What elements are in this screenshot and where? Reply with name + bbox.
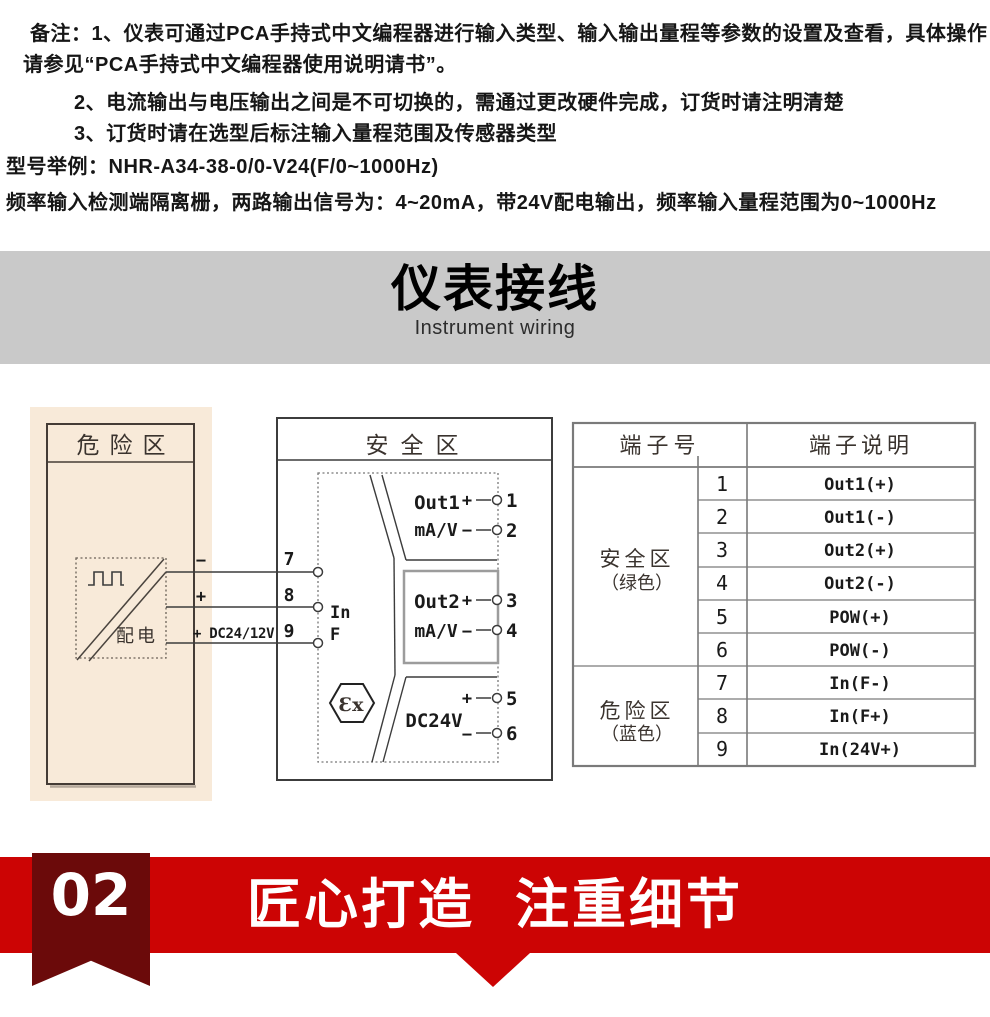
- table-row-desc: POW(-): [829, 641, 890, 661]
- dc24v-label: DC24V: [405, 710, 462, 732]
- out2-unit-label: mA/V: [414, 621, 458, 642]
- table-row-number: 8: [716, 704, 728, 728]
- note-line-4: 3、订货时请在选型后标注输入量程范围及传感器类型: [74, 117, 557, 146]
- table-row-number: 7: [716, 671, 728, 695]
- table-row-number: 4: [716, 571, 728, 595]
- note-line-1: 备注：1、仪表可通过PCA手持式中文编程器进行输入类型、输入输出量程等参数的设置…: [30, 17, 987, 46]
- table-row-desc: POW(+): [829, 608, 890, 628]
- section-title: 仪表接线: [0, 251, 990, 314]
- out1-unit-label: mA/V: [414, 520, 458, 541]
- out1-label: Out1: [414, 492, 460, 514]
- terminal-4-circle: [493, 626, 502, 635]
- out1-minus-sign: −: [462, 521, 472, 541]
- terminal-5-number: 5: [506, 688, 517, 710]
- terminal-6-circle: [493, 729, 502, 738]
- input-terminal-7-circle: [314, 568, 323, 577]
- terminal-3-number: 3: [506, 590, 517, 612]
- wire-plus-label: +: [196, 587, 206, 607]
- input-label-f: F: [330, 625, 340, 645]
- table-group-safe-color: （绿色）: [601, 573, 673, 594]
- table-row-number: 9: [716, 737, 728, 761]
- hazard-zone-panel: [30, 407, 212, 801]
- table-group-safe-name: 安全区: [600, 547, 675, 571]
- footer-ribbon: 02: [32, 853, 150, 986]
- wiring-diagram: 危险区 配电 − + + DC24/12V 7 8 9 安全区: [0, 395, 990, 840]
- table-header-terminal-desc: 端子说明: [809, 434, 913, 459]
- table-row-desc: In(F+): [829, 707, 890, 727]
- wire-minus-label: −: [196, 551, 206, 571]
- terminal-2-number: 2: [506, 520, 517, 542]
- dc24v-plus-sign: +: [462, 689, 472, 709]
- table-row-desc: In(F-): [829, 674, 890, 694]
- footer-index: 02: [32, 853, 150, 924]
- out2-box: [404, 571, 498, 663]
- table-group-hazard-color: （蓝色）: [601, 724, 673, 745]
- terminal-5-circle: [493, 694, 502, 703]
- product-detail-page: 备注：1、仪表可通过PCA手持式中文编程器进行输入类型、输入输出量程等参数的设置…: [0, 0, 990, 1017]
- terminal-2-circle: [493, 526, 502, 535]
- input-terminal-8-circle: [314, 603, 323, 612]
- section-subtitle: Instrument wiring: [0, 317, 990, 340]
- terminal-4-number: 4: [506, 620, 517, 642]
- terminal-1-circle: [493, 496, 502, 505]
- note-line-6: 频率输入检测端隔离栅，两路输出信号为：4~20mA，带24V配电输出，频率输入量…: [6, 186, 937, 215]
- out2-minus-sign: −: [462, 622, 472, 642]
- out2-label: Out2: [414, 591, 460, 613]
- table-row-number: 2: [716, 505, 728, 529]
- terminal-7-number: 7: [284, 549, 295, 570]
- section-banner: 仪表接线 Instrument wiring: [0, 251, 990, 364]
- table-row-number: 3: [716, 538, 728, 562]
- input-terminal-9-circle: [314, 639, 323, 648]
- terminal-table: 端子号 端子说明 安全区 （绿色） 危险区 （蓝色） 1 2 3 4 5 6 7…: [573, 423, 975, 766]
- terminal-8-number: 8: [284, 585, 295, 606]
- power-supply-label: 配电: [116, 626, 158, 647]
- wire-supply-label: + DC24/12V: [193, 626, 275, 642]
- table-row-desc: Out1(+): [824, 475, 896, 495]
- table-row-desc: In(24V+): [819, 740, 901, 760]
- ex-symbol-text: Ɛx: [338, 694, 364, 716]
- safe-zone-title: 安全区: [366, 433, 471, 459]
- table-row-number: 6: [716, 638, 728, 662]
- table-row-number: 1: [716, 472, 728, 496]
- input-label-in: In: [330, 603, 350, 623]
- table-row-desc: Out2(+): [824, 541, 896, 561]
- table-row-desc: Out1(-): [824, 508, 896, 528]
- terminal-1-number: 1: [506, 490, 517, 512]
- note-line-3: 2、电流输出与电压输出之间是不可切换的，需通过更改硬件完成，订货时请注明清楚: [74, 86, 844, 115]
- footer-pointer-icon: [456, 953, 530, 987]
- note-line-5: 型号举例：NHR-A34-38-0/0-V24(F/0~1000Hz): [6, 150, 439, 179]
- out2-plus-sign: +: [462, 591, 472, 611]
- out1-plus-sign: +: [462, 491, 472, 511]
- table-group-hazard-name: 危险区: [600, 699, 675, 723]
- table-row-desc: Out2(-): [824, 574, 896, 594]
- note-line-2: 请参见“PCA手持式中文编程器使用说明请书”。: [23, 48, 457, 77]
- table-row-number: 5: [716, 605, 728, 629]
- terminal-9-number: 9: [284, 621, 295, 642]
- terminal-6-number: 6: [506, 723, 517, 745]
- table-header-terminal-no: 端子号: [619, 434, 700, 459]
- dc24v-minus-sign: −: [462, 725, 472, 745]
- terminal-3-circle: [493, 596, 502, 605]
- hazard-zone-title: 危险区: [77, 433, 176, 459]
